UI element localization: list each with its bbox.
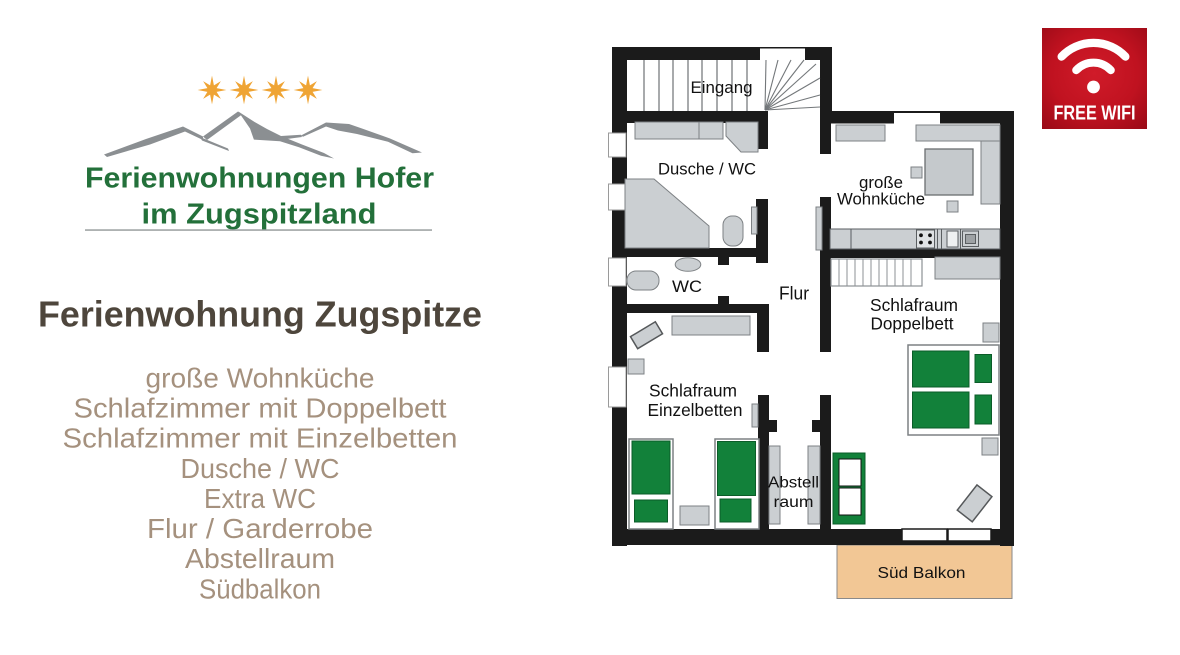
svg-text:Abstellraum: Abstellraum [185, 543, 335, 574]
svg-text:Einzelbetten: Einzelbetten [648, 400, 743, 420]
svg-text:Schlafzimmer mit Doppelbett: Schlafzimmer mit Doppelbett [74, 393, 447, 424]
svg-text:Ferienwohnungen Hofer: Ferienwohnungen Hofer [85, 162, 434, 194]
svg-text:Dusche / WC: Dusche / WC [658, 160, 756, 179]
svg-text:Süd Balkon: Süd Balkon [878, 565, 966, 582]
svg-text:Schlafraum: Schlafraum [649, 381, 737, 401]
svg-text:WC: WC [672, 277, 702, 296]
svg-text:Abstell: Abstell [768, 475, 819, 492]
svg-text:Eingang: Eingang [691, 78, 753, 97]
svg-text:Flur: Flur [779, 284, 809, 304]
svg-text:Doppelbett: Doppelbett [871, 314, 954, 334]
svg-text:Extra WC: Extra WC [204, 483, 316, 514]
svg-text:im Zugspitzland: im Zugspitzland [142, 198, 377, 230]
svg-text:Ferienwohnung Zugspitze: Ferienwohnung Zugspitze [38, 294, 482, 335]
svg-text:raum: raum [774, 494, 814, 511]
svg-text:Flur / Garderrobe: Flur / Garderrobe [147, 513, 373, 544]
svg-text:FREE WIFI: FREE WIFI [1054, 103, 1136, 125]
svg-text:Südbalkon: Südbalkon [199, 573, 321, 604]
svg-text:Schlafzimmer mit Einzelbetten: Schlafzimmer mit Einzelbetten [63, 423, 458, 454]
svg-text:Schlafraum: Schlafraum [870, 295, 958, 315]
svg-text:Dusche / WC: Dusche / WC [181, 453, 340, 484]
svg-text:große Wohnküche: große Wohnküche [146, 363, 375, 394]
svg-text:Wohnküche: Wohnküche [837, 190, 925, 209]
